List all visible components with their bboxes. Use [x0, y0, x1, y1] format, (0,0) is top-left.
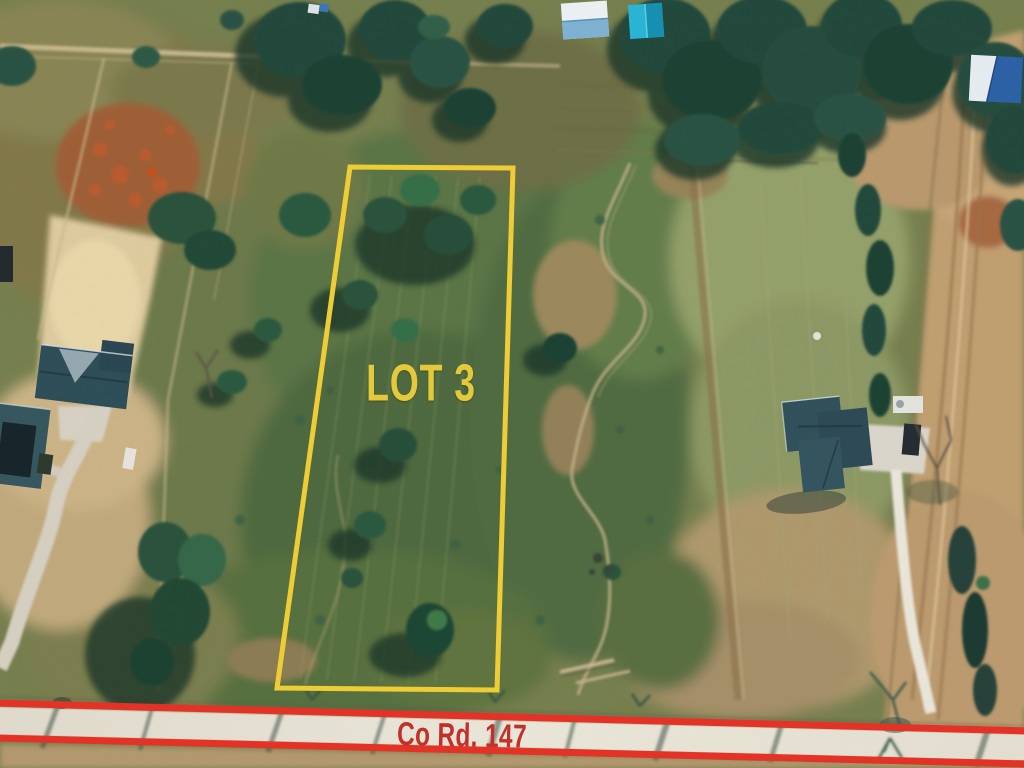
aerial-photo-art — [0, 0, 1024, 768]
photo-grain — [0, 0, 1024, 768]
road-label: Co Rd. 147 — [397, 715, 528, 756]
aerial-lot-photo: LOT 3 Co Rd. 147 — [0, 0, 1024, 768]
lot-label: LOT 3 — [366, 354, 476, 414]
